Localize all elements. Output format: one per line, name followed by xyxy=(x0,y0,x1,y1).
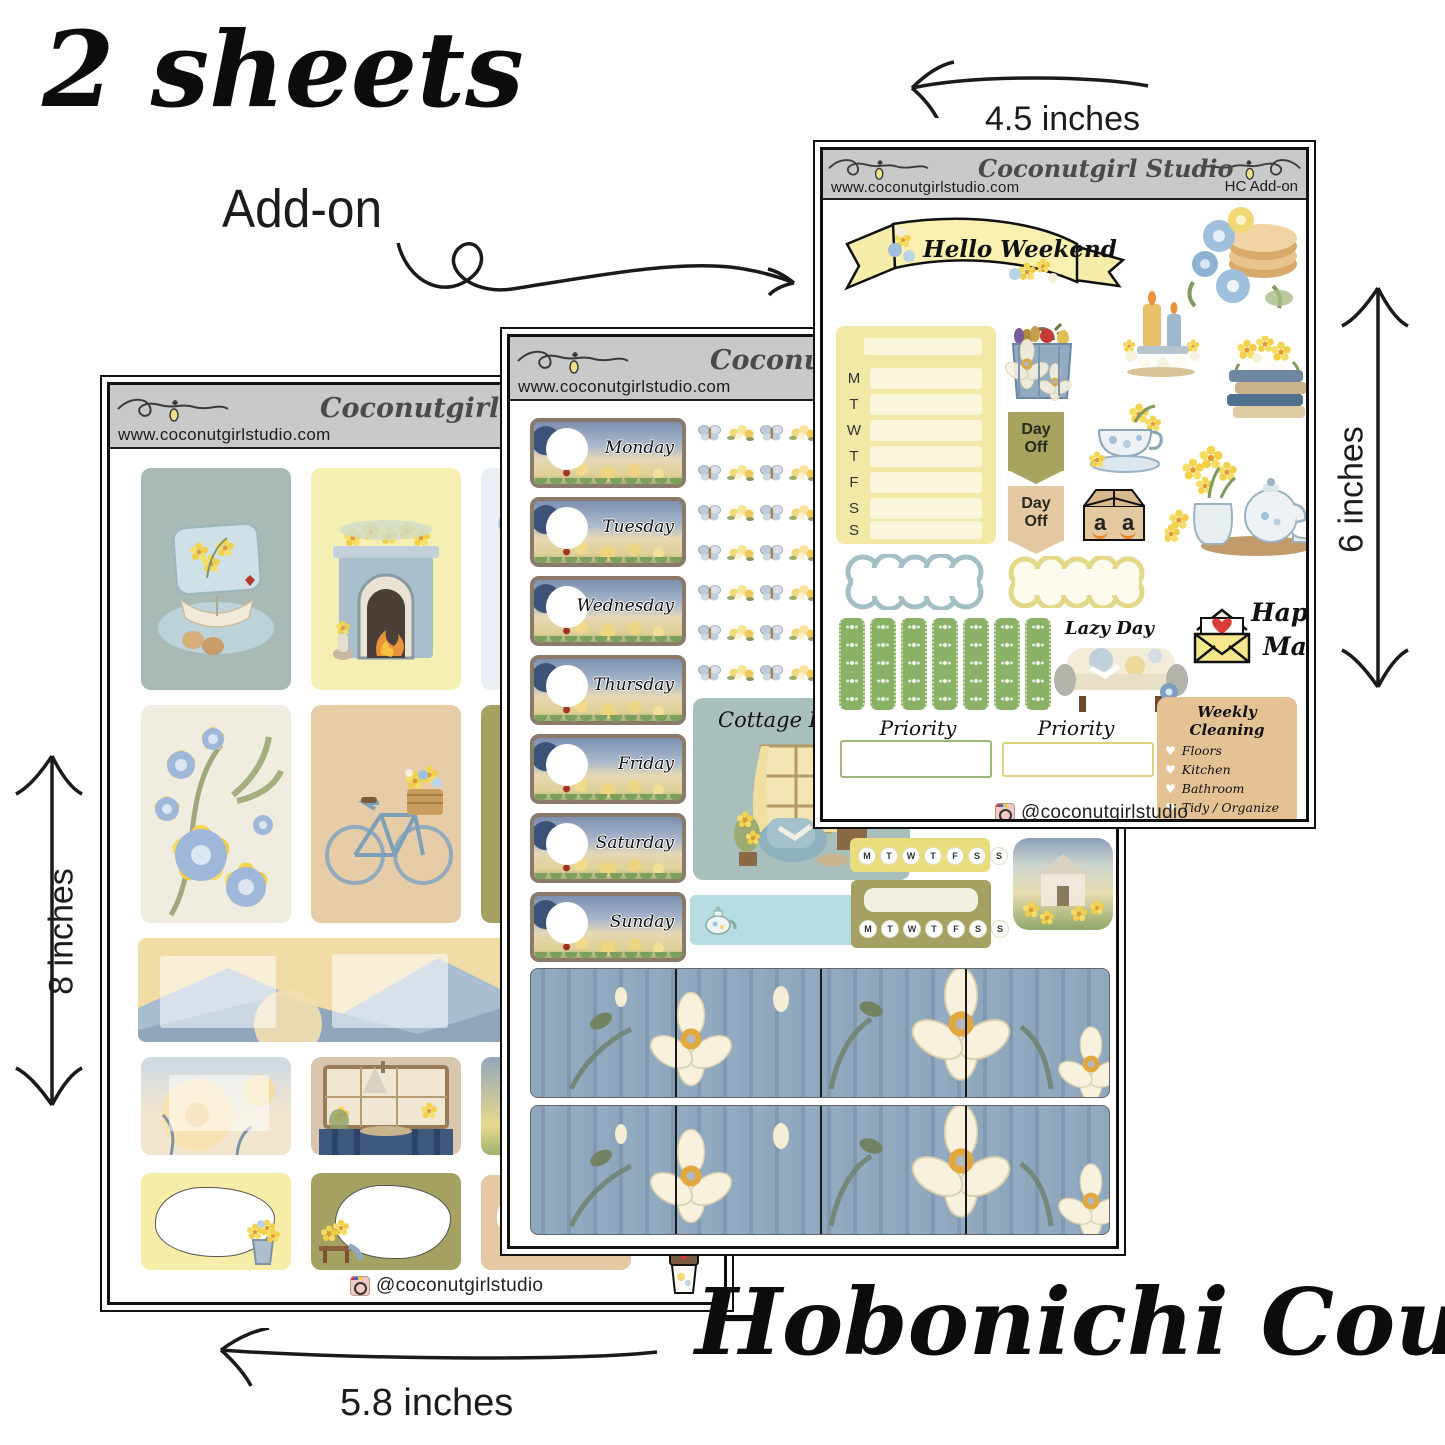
instagram-icon xyxy=(995,803,1015,822)
cleaning-item-label: Vacuum/ Sweep xyxy=(1182,819,1283,822)
amazon-box-sticker: a a xyxy=(1076,484,1152,544)
flower-table-icon xyxy=(313,1216,365,1264)
addon-label: Add-on xyxy=(222,178,382,240)
bicycle-illustration xyxy=(311,705,461,923)
fireplace-sticker-box xyxy=(311,468,461,690)
weekly-sidebar-sticker: M T W T F S S xyxy=(836,326,996,544)
weekday-w: W xyxy=(903,920,921,938)
day-label: Saturday xyxy=(596,833,674,853)
weekday-t2: T xyxy=(925,920,943,938)
sidebar-row xyxy=(870,420,982,441)
priority-label-1: Priority xyxy=(863,716,973,740)
sidebar-row xyxy=(870,498,982,519)
bottom-dim-label: 5.8 inches xyxy=(340,1382,513,1425)
lace-border-sticker xyxy=(1025,618,1051,710)
sidebar-row xyxy=(870,368,982,389)
grocery-bag-sticker xyxy=(1005,322,1079,402)
sidebar-title-line xyxy=(864,338,982,355)
sidebar-row xyxy=(870,446,982,467)
sidebar-letter: S xyxy=(843,522,865,539)
cottage-scene-sticker xyxy=(1013,838,1113,930)
cleaning-item-label: Tidy / Organize xyxy=(1182,800,1279,815)
weekday-s: S xyxy=(968,847,986,865)
sheet3-header: Coconutgirl Studio www.coconutgirlstudio… xyxy=(823,150,1306,200)
weekday-m: M xyxy=(859,920,877,938)
poppy-illustration xyxy=(141,1057,291,1155)
pillow-sticker-box xyxy=(141,468,291,690)
flag-notch xyxy=(1008,470,1064,484)
day-label: Tuesday xyxy=(602,517,674,537)
sidebar-letter: M xyxy=(843,370,865,387)
scalloped-label-yellow xyxy=(1001,556,1151,608)
instagram-handle: @coconutgirlstudio xyxy=(376,1275,543,1297)
instagram-handle: @coconutgirlstudio xyxy=(1021,802,1188,822)
weekday-s2: S xyxy=(990,847,1008,865)
lace-border-sticker xyxy=(870,618,896,710)
day-off-label: Day Off xyxy=(1021,495,1050,530)
sheet-code: HC Add-on xyxy=(1225,178,1298,195)
top-dim-label: 4.5 inches xyxy=(985,100,1140,139)
day-label: Sunday xyxy=(610,912,674,932)
sidebar-letter: T xyxy=(843,396,865,413)
cottage-illustration xyxy=(1013,838,1113,930)
lace-border-sticker xyxy=(901,618,927,710)
lazy-day-label: Lazy Day xyxy=(1065,618,1154,639)
fireplace-illustration xyxy=(311,468,461,690)
happy-mail-line1: Happy xyxy=(1251,598,1309,627)
sticker-sheet-hc-addon: Coconutgirl Studio www.coconutgirlstudio… xyxy=(813,140,1316,829)
weekday-s: S xyxy=(969,920,987,938)
yellow-label-sticker xyxy=(141,1173,291,1270)
washi-divider xyxy=(675,969,677,1097)
teapot-icon xyxy=(700,903,738,937)
weekday-m: M xyxy=(858,847,876,865)
happy-mail-line2: Mail xyxy=(1263,632,1309,661)
sheet3-footer: @coconutgirlstudio xyxy=(995,802,1188,822)
website-url: www.coconutgirlstudio.com xyxy=(831,179,1019,196)
blue-floral-lace-box xyxy=(141,705,291,923)
day-off-flag-olive: Day Off xyxy=(1008,412,1064,471)
weekday-w: W xyxy=(902,847,920,865)
sidebar-letter: W xyxy=(843,422,865,439)
sheet-count-label: 2 sheets xyxy=(42,8,524,131)
cleaning-item: ♥Floors xyxy=(1165,741,1289,760)
weekday-t: T xyxy=(881,920,899,938)
sidebar-letter: T xyxy=(843,448,865,465)
olive-weekday-tracker: MTWTFSS xyxy=(851,880,991,948)
flower-bucket-icon xyxy=(241,1218,285,1266)
heart-bullet-icon: ♥ xyxy=(1165,821,1176,823)
day-off-flag-tan: Day Off xyxy=(1008,486,1064,541)
kitchen-illustration xyxy=(311,1057,461,1155)
priority-label-2: Priority xyxy=(1021,716,1131,740)
priority-box-green xyxy=(840,740,992,778)
day-header-monday: Monday xyxy=(530,418,686,488)
weekly-cleaning-title: Weekly Cleaning xyxy=(1165,703,1289,739)
amazon-box-icon xyxy=(1076,484,1152,544)
lace-border-sticker xyxy=(932,618,958,710)
amazon-letter: a xyxy=(1120,510,1136,539)
weekday-circles: MTWTFSS xyxy=(859,920,1009,938)
heart-bullet-icon: ♥ xyxy=(1165,745,1176,757)
day-header-saturday: Saturday xyxy=(530,813,686,883)
day-header-wednesday: Wednesday xyxy=(530,576,686,646)
sidebar-row xyxy=(870,394,982,415)
sidebar-letter: F xyxy=(843,474,865,491)
weekday-f: F xyxy=(946,847,964,865)
cleaning-item-label: Kitchen xyxy=(1182,762,1231,777)
scalloped-label-blue xyxy=(839,554,989,610)
cleaning-item-label: Floors xyxy=(1182,743,1222,758)
addon-arrow xyxy=(390,225,815,330)
flourish-icon xyxy=(116,393,236,423)
pillow-book-illustration xyxy=(141,468,291,690)
washi-strip-1 xyxy=(530,968,1110,1098)
weekday-t: T xyxy=(880,847,898,865)
day-label: Thursday xyxy=(593,675,674,695)
sidebar-row xyxy=(870,521,982,539)
lace-border-sticker xyxy=(994,618,1020,710)
day-header-thursday: Thursday xyxy=(530,655,686,725)
banner-text: Hello Weekend xyxy=(923,236,1117,263)
washi-divider xyxy=(820,969,822,1097)
washi-divider xyxy=(820,1106,822,1234)
product-title: Hobonichi Cousin xyxy=(695,1268,1445,1376)
website-url: www.coconutgirlstudio.com xyxy=(518,377,731,397)
right-dim-label: 6 inches xyxy=(1333,420,1372,560)
weekday-t2: T xyxy=(924,847,942,865)
day-header-sunday: Sunday xyxy=(530,892,686,962)
teacup-sticker xyxy=(1083,402,1175,480)
day-header-friday: Friday xyxy=(530,734,686,804)
day-label: Friday xyxy=(618,754,674,774)
olive-label-sticker xyxy=(311,1173,461,1270)
day-header-tuesday: Tuesday xyxy=(530,497,686,567)
heart-bullet-icon: ♥ xyxy=(1165,783,1176,795)
yellow-weekday-tracker: MTWTFSS xyxy=(850,838,990,872)
daffodil-tea-set-sticker xyxy=(1165,442,1309,558)
flourish-icon xyxy=(516,345,636,375)
day-off-label: Day Off xyxy=(1021,421,1050,456)
website-url: www.coconutgirlstudio.com xyxy=(118,425,331,445)
candles-sticker xyxy=(1115,282,1207,378)
priority-box-yellow xyxy=(1002,742,1154,777)
flag-notch xyxy=(1008,540,1064,554)
lace-border-sticker xyxy=(839,618,865,710)
weekday-s2: S xyxy=(991,920,1009,938)
flourish-icon xyxy=(827,154,935,181)
weekday-circles: MTWTFSS xyxy=(858,847,1008,865)
hello-weekend-banner: Hello Weekend xyxy=(837,210,1133,302)
left-dim-label: 8 inches xyxy=(43,862,82,1002)
blue-flowers-illustration xyxy=(141,705,291,923)
happy-mail-sticker: Happy Mail xyxy=(1189,598,1309,698)
cleaning-item-label: Bathroom xyxy=(1182,781,1245,796)
amazon-letter: a xyxy=(1092,510,1108,539)
instagram-icon xyxy=(350,1276,370,1296)
books-flowers-sticker xyxy=(1219,336,1309,426)
sheet3-content: Coconutgirl Studio www.coconutgirlstudio… xyxy=(820,147,1309,822)
bicycle-sticker-box xyxy=(311,705,461,923)
washi-divider xyxy=(965,969,967,1097)
washi-divider xyxy=(965,1106,967,1234)
envelope-heart-icon xyxy=(1189,604,1255,668)
cleaning-item: ♥Bathroom xyxy=(1165,779,1289,798)
cleaning-item: ♥Kitchen xyxy=(1165,760,1289,779)
washi-strip-2 xyxy=(530,1105,1110,1235)
heart-bullet-icon: ♥ xyxy=(1165,764,1176,776)
sheet1-footer: @coconutgirlstudio xyxy=(350,1275,543,1297)
sidebar-letter: S xyxy=(843,500,865,517)
sidebar-row xyxy=(870,472,982,493)
washi-divider xyxy=(675,1106,677,1234)
tracker-writing-line xyxy=(864,888,978,912)
lace-border-sticker xyxy=(963,618,989,710)
day-label: Monday xyxy=(605,438,674,458)
weekday-f: F xyxy=(947,920,965,938)
bottom-dim-arrow xyxy=(205,1328,665,1388)
kitchen-half-box xyxy=(311,1057,461,1155)
day-label: Wednesday xyxy=(577,596,674,616)
poppy-half-box xyxy=(141,1057,291,1155)
